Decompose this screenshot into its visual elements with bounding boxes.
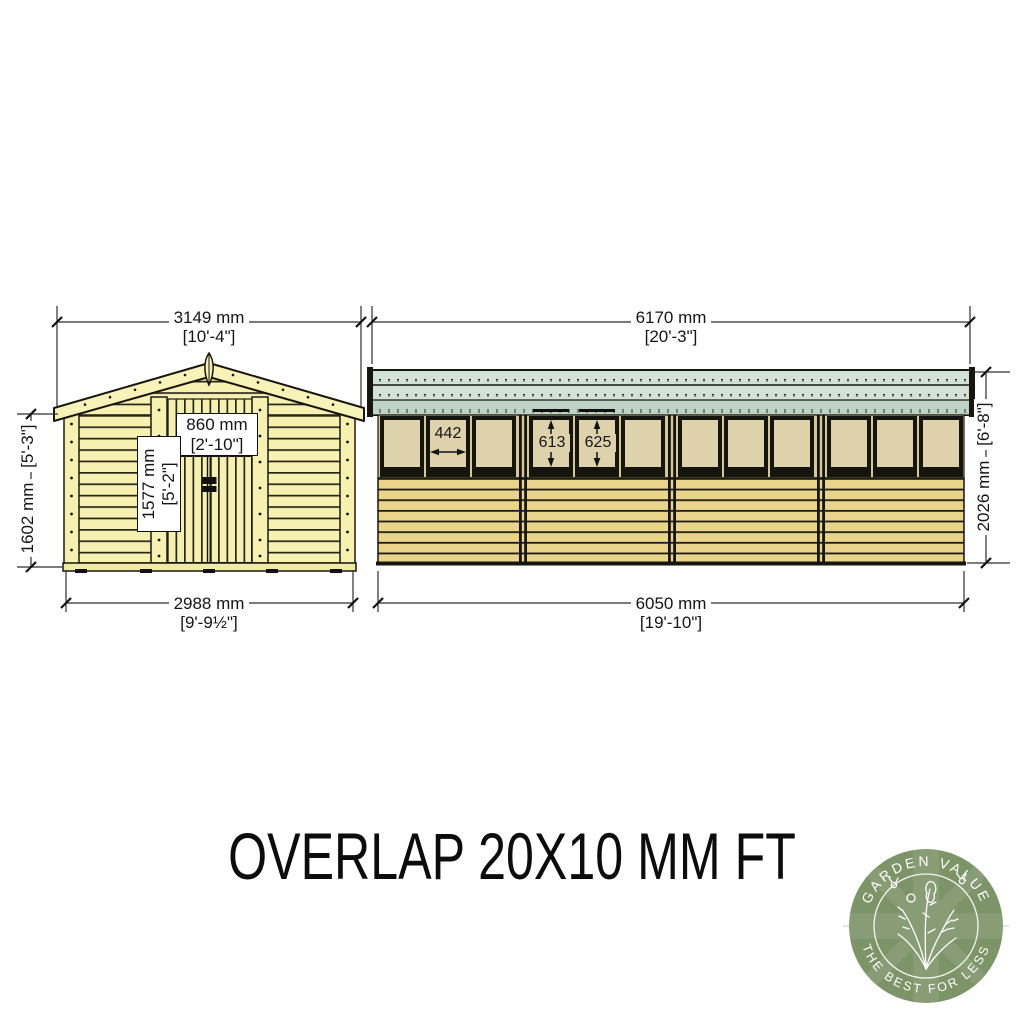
door-width-dimension: 860 mm [2'-10"]: [176, 413, 258, 456]
product-title: OVERLAP 20X10 MM FT: [208, 818, 816, 894]
front-base-width-dimension: 2988 mm [9'-9½"]: [119, 594, 299, 633]
side-eaves-height-dimension: 2026 mm [6'-8"]: [974, 382, 1018, 552]
side-overall-length-dimension: 6170 mm [20'-3"]: [581, 308, 761, 347]
garden-value-logo: GARDEN VALUE THE BEST FOR LESS: [843, 843, 1009, 1009]
door-height-dimension: 1577 mm [5'-2"]: [137, 436, 181, 532]
front-overall-width-dimension: 3149 mm [10'-4"]: [119, 308, 299, 347]
door-lock-icon: [203, 477, 217, 484]
window-height-b-dimension: 625: [580, 434, 616, 452]
side-roof: [367, 367, 975, 417]
front-base: [63, 563, 356, 573]
side-base-length-dimension: 6050 mm [19'-10"]: [581, 594, 761, 633]
shed-technical-drawing-page: { "document": { "title": "OVERLAP 20X10 …: [0, 0, 1024, 1024]
window-width-dimension: 442: [430, 425, 466, 443]
front-elevation-drawing: [54, 353, 364, 573]
window-height-a-dimension: 613: [534, 434, 570, 452]
side-elevation-drawing: [367, 367, 975, 566]
side-base: [376, 562, 966, 566]
front-wall-height-dimension: 1602 mm [5'-3"]: [18, 404, 62, 574]
